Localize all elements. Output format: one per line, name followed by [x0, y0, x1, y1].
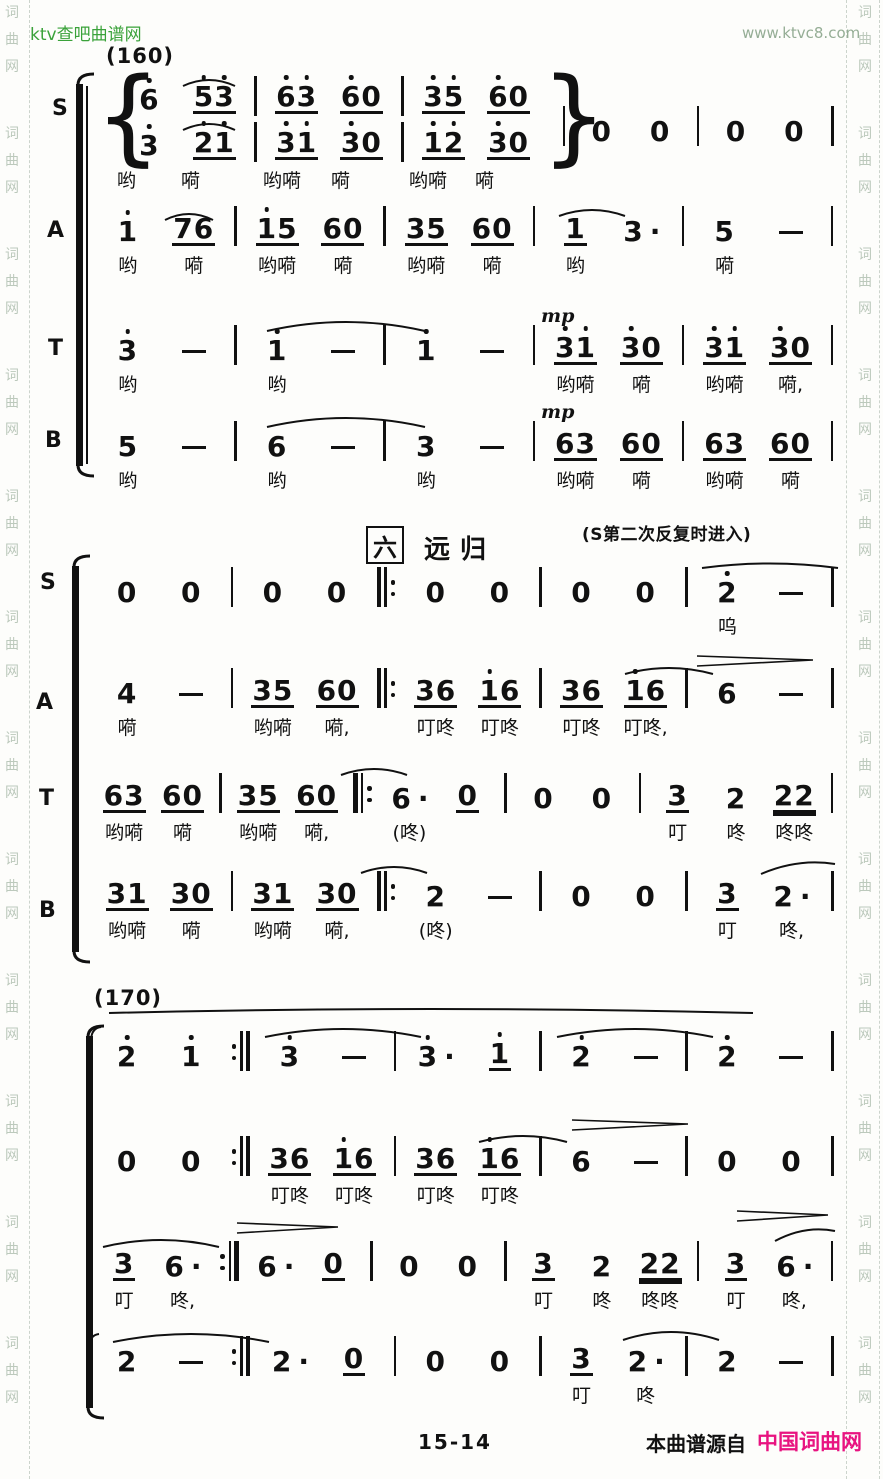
bar-cell: [223, 1330, 258, 1409]
note: 30: [487, 129, 530, 160]
bar-cell: [532, 1025, 550, 1104]
note: 35: [422, 83, 465, 114]
bar-cell: [678, 662, 696, 741]
note-digit: 3: [418, 1043, 438, 1071]
note-line: 3: [666, 767, 688, 813]
beat-cell: 1哟: [543, 200, 609, 279]
note: 2: [116, 1043, 138, 1071]
beat-cell: 2·咚: [614, 1330, 678, 1409]
repeat-end-barline: [223, 1330, 258, 1376]
duration-dash: [634, 1161, 658, 1165]
note-digit: 6: [621, 430, 641, 458]
beat-cell: 16叮咚: [322, 1130, 386, 1209]
bar-cell: [223, 1025, 258, 1104]
note-line: 60: [487, 70, 530, 114]
bar-cell: [247, 70, 265, 116]
note-digit: 6: [555, 430, 575, 458]
repeat-end-barline: [223, 1025, 258, 1071]
beat-cell: 0: [95, 561, 159, 640]
bar-cell: [247, 116, 265, 162]
voice-row-a: 1哟76嗬15哟嗬60嗬35哟嗬60嗬1哟3·5嗬: [95, 200, 841, 279]
barline: [824, 1330, 842, 1376]
voice-label-b2: B: [39, 898, 56, 923]
note-line: 0: [326, 561, 348, 607]
note-line: 0: [456, 767, 478, 813]
note: 1: [489, 1040, 511, 1071]
note: 0: [649, 118, 671, 146]
note: 3: [113, 1250, 135, 1281]
note-digit: 6: [436, 677, 456, 705]
note-line: 2·: [772, 865, 810, 911]
note-digit: 6: [391, 785, 411, 813]
barline: [631, 767, 649, 813]
bar-cell: [824, 1130, 842, 1209]
note-digit: 5: [714, 218, 734, 246]
note: 22: [639, 1250, 682, 1281]
augmentation-dot: ·: [650, 218, 661, 246]
note-digit: 2: [628, 1348, 648, 1376]
note: 63: [554, 430, 597, 461]
slur-curve: [107, 1005, 755, 1017]
note-digit: 6: [354, 1145, 374, 1173]
note-digit: 0: [781, 1148, 801, 1176]
voice-row-t: 3叮6·咚,6·0003叮2咚22咚咚3叮6·咚,: [95, 1235, 841, 1314]
note: 16: [624, 677, 667, 708]
note: 60: [769, 430, 812, 461]
lyric-text: 哟: [268, 466, 287, 494]
note-digit: 6: [571, 1148, 591, 1176]
note-line: 35: [237, 767, 280, 813]
beat-cell: 31哟嗬: [95, 865, 159, 944]
bar-cell: [532, 1330, 550, 1409]
watermark-char: 词: [5, 974, 19, 988]
note-digit: 3: [280, 1043, 300, 1071]
note-digit: 2: [117, 1348, 137, 1376]
lyric-text: 嗬: [483, 251, 502, 279]
watermark-char: 网: [858, 302, 872, 316]
note: 0: [322, 1250, 344, 1281]
note-line: [488, 865, 512, 911]
note: 36: [414, 677, 457, 708]
watermark-char: 曲: [858, 275, 872, 289]
watermark-char: 曲: [858, 1243, 872, 1257]
lyric-text: 哟嗬: [254, 713, 292, 741]
watermark-char: 词: [858, 490, 872, 504]
bar-cell: [212, 767, 230, 846]
beat-cell: 0: [707, 100, 765, 146]
note-digit: 0: [337, 880, 357, 908]
source-site: 中国词曲网: [757, 1426, 862, 1456]
note: 2: [570, 1043, 592, 1071]
watermark-char: 词: [858, 732, 872, 746]
note-line: 60: [471, 200, 514, 246]
watermark-char: 网: [858, 544, 872, 558]
note-digit: 4: [117, 680, 137, 708]
watermark-char: 网: [5, 665, 19, 679]
note-digit: 3: [114, 1250, 134, 1278]
note-line: 0: [180, 1130, 202, 1176]
bar-cell: [376, 415, 394, 494]
beat-cell: 0: [159, 1130, 223, 1209]
note: 1: [415, 337, 437, 365]
barline: [386, 1130, 404, 1176]
note: 0: [634, 579, 656, 607]
note-line: 0: [780, 1130, 802, 1176]
note-digit: 1: [127, 880, 147, 908]
note-line: 1: [564, 200, 586, 246]
barline: [223, 662, 241, 708]
note-digit: 3: [575, 430, 595, 458]
barline: [223, 865, 241, 911]
barline: [678, 662, 696, 708]
duration-dash: [179, 693, 203, 697]
voice-label-t2: T: [39, 786, 54, 811]
beat-cell: 6·咚,: [153, 1235, 211, 1314]
left-dashed-rule: [29, 0, 30, 1479]
beat-cell: 6: [695, 662, 759, 741]
beat-cell: 0: [614, 561, 678, 640]
note-line: 3: [138, 116, 160, 160]
beat-cell: 60嗬: [310, 200, 376, 279]
barline: [532, 561, 550, 607]
note: 5: [713, 218, 735, 246]
barline: [824, 561, 842, 607]
note-digit: 3: [623, 218, 643, 246]
watermark-char: 网: [858, 1028, 872, 1042]
voice-label-s2: S: [40, 570, 56, 595]
note: 2: [424, 883, 446, 911]
duration-dash: [779, 592, 803, 596]
note-line: 0: [424, 1330, 446, 1376]
note-digit: 6: [704, 430, 724, 458]
beat-cell: 2(咚): [404, 865, 468, 944]
watermark-char: 网: [5, 302, 19, 316]
beat-cell: [459, 415, 525, 494]
note: 53: [193, 83, 236, 114]
watermark-char: 词: [858, 1095, 872, 1109]
watermark-char: 网: [5, 1391, 19, 1405]
augmentation-dot: ·: [800, 883, 811, 911]
beat-cell: 3哟: [95, 319, 161, 398]
note-line: 4: [116, 662, 138, 708]
bar-cell: [678, 1025, 696, 1104]
note-line: [331, 415, 355, 461]
beat-cell: [459, 319, 525, 398]
note-digit: 2: [726, 785, 746, 813]
duration-dash: [182, 446, 206, 450]
note: 60: [321, 215, 364, 246]
beat-cell: 2咚: [707, 767, 765, 846]
note: 0: [262, 579, 284, 607]
watermark-char: 网: [5, 1149, 19, 1163]
note-digit: 0: [635, 579, 655, 607]
beat-cell: 0: [614, 865, 678, 944]
note-line: [634, 1130, 658, 1176]
lyric-text: 嗬: [182, 916, 201, 944]
note-digit: 3: [124, 782, 144, 810]
note-line: 2: [716, 561, 738, 607]
note-line: 3: [570, 1330, 592, 1376]
note-line: [182, 319, 206, 365]
note: 16: [478, 677, 521, 708]
note-digit: 1: [416, 337, 436, 365]
beat-cell: 36叮咚: [404, 662, 468, 741]
lyric-text: 咚咚: [641, 1286, 679, 1314]
barline: [532, 1130, 550, 1176]
lyric-text: 哟嗬: [108, 916, 146, 944]
note: 3: [716, 880, 738, 911]
repeat-annotation: (S第二次反复时进入): [582, 520, 751, 545]
note-digit: 1: [565, 215, 585, 243]
note: 60: [620, 430, 663, 461]
watermark-char: 曲: [858, 638, 872, 652]
bar-cell: [223, 662, 241, 741]
note-digit: 6: [276, 83, 296, 111]
lyric-text: 叮: [718, 916, 737, 944]
note-digit: 3: [297, 83, 317, 111]
note-line: 2: [716, 1025, 738, 1071]
beat-cell: 0: [549, 561, 613, 640]
note-line: 0: [489, 561, 511, 607]
note: 36: [560, 677, 603, 708]
bar-cell: [532, 865, 550, 944]
watermark-char: 词: [5, 127, 19, 141]
beat-cell: 2: [695, 1330, 759, 1409]
barline: [674, 319, 692, 365]
beat-cell: 2: [695, 1025, 759, 1104]
voice-row-t: 63哟嗬60嗬35哟嗬60嗬,6·(咚)0003叮2咚22咚咚: [95, 767, 841, 846]
beat-cell: 30: [476, 116, 541, 162]
bar-cell: [823, 415, 841, 494]
system-bracket: [86, 1036, 93, 1408]
note-digit: 0: [509, 83, 529, 111]
voice-row-s: 000000002呜: [95, 561, 841, 640]
augmentation-dot: ·: [444, 1043, 455, 1071]
note-digit: 1: [479, 1145, 499, 1173]
note-digit: 6: [488, 83, 508, 111]
note: 6·: [390, 785, 428, 813]
lyric-text: 哟: [566, 251, 585, 279]
note-line: 1: [489, 1025, 511, 1071]
note-line: 0: [725, 100, 747, 146]
bar-cell: [212, 1235, 247, 1314]
note-digit: 0: [533, 785, 553, 813]
beat-cell: 22咚咚: [765, 767, 823, 846]
note: 63: [103, 782, 146, 813]
note-digit: 3: [252, 677, 272, 705]
beat-cell: 76嗬: [161, 200, 227, 279]
bar-cell: [376, 200, 394, 279]
left-watermark-column: 词曲网词曲网词曲网词曲网词曲网词曲网词曲网词曲网词曲网词曲网词曲网词曲网: [2, 6, 22, 1458]
beat-cell: 15哟嗬: [244, 200, 310, 279]
note-line: 31: [251, 865, 294, 911]
note-digit: 6: [341, 83, 361, 111]
lyric-text: 哟: [118, 251, 137, 279]
note-line: 30: [170, 865, 213, 911]
note-line: 36: [414, 662, 457, 708]
note-digit: 0: [117, 1148, 137, 1176]
lyric-text: 哟: [118, 466, 137, 494]
watermark-char: 网: [5, 60, 19, 74]
note-line: 31: [703, 319, 746, 365]
note-line: 0: [262, 561, 284, 607]
note: 3·: [622, 218, 660, 246]
beat-cell: 60: [476, 70, 541, 116]
watermark-char: 词: [5, 611, 19, 625]
beat-cell: 0: [514, 767, 572, 846]
barline: [247, 70, 265, 116]
note: 31: [251, 880, 294, 911]
bar-cell: [394, 116, 412, 162]
note-digit: 1: [725, 334, 745, 362]
repeat-begin-barline: [369, 662, 404, 708]
note-digit: 6: [162, 782, 182, 810]
beat-cell: 4嗬: [95, 662, 159, 741]
bar-cell: [823, 1235, 841, 1314]
duration-dash: [779, 1361, 803, 1365]
voice-row-a: 4嗬35哟嗬60嗬,36叮咚16叮咚36叮咚16叮咚,6: [95, 662, 841, 741]
note-digit: 0: [361, 129, 381, 157]
note: 3: [666, 782, 688, 813]
note-line: 36: [560, 662, 603, 708]
note-digit: 1: [267, 337, 287, 365]
lyric-text: 嗬: [715, 251, 734, 279]
note-digit: 3: [725, 430, 745, 458]
lyric-text: 哟嗬: [105, 818, 143, 846]
beat-cell: 1哟: [244, 319, 310, 398]
beat-cell: 1哟: [95, 200, 161, 279]
section-number-box: 六: [366, 526, 404, 564]
right-edge-dashed-rule: [879, 0, 880, 1479]
bar-cell: [674, 415, 692, 494]
note-digit: 2: [717, 1043, 737, 1071]
note-digit: 3: [726, 1250, 746, 1278]
note-digit: 3: [488, 129, 508, 157]
note-digit: 0: [425, 1348, 445, 1376]
note-line: 6: [570, 1130, 592, 1176]
barline: [678, 865, 696, 911]
note: 16: [478, 1145, 521, 1176]
watermark-char: 词: [858, 853, 872, 867]
watermark-char: 曲: [5, 638, 19, 652]
lyric-text: 嗬,: [325, 713, 350, 741]
note-digit: 6: [500, 1145, 520, 1173]
note: 1: [180, 1043, 202, 1071]
beat-cell: [310, 319, 376, 398]
barline: [532, 1330, 550, 1376]
duration-dash: [779, 693, 803, 697]
note: 2: [716, 1043, 738, 1071]
beat-cell: 36叮咚: [258, 1130, 322, 1209]
note-line: 2: [570, 1025, 592, 1071]
lyric-text: 叮咚: [417, 1181, 455, 1209]
note-line: 1: [266, 319, 288, 365]
voice-row-t: 3哟1哟131哟嗬30嗬31哟嗬30嗬,mp: [95, 319, 841, 398]
beat-cell: [759, 662, 823, 741]
beat-cell: 63哟嗬: [543, 415, 609, 494]
lyric-text: 叮咚: [271, 1181, 309, 1209]
beat-cell: 0: [549, 865, 613, 944]
bar-cell: [223, 561, 241, 640]
bar-cell: [532, 561, 550, 640]
note-digit: 2: [444, 129, 464, 157]
note-digit: 1: [625, 677, 645, 705]
note-digit: 3: [533, 1250, 553, 1278]
bar-cell: [532, 1130, 550, 1209]
repeat-end-barline: [212, 1235, 247, 1281]
watermark-char: 网: [5, 1270, 19, 1284]
note-line: 2: [116, 1025, 138, 1071]
bar-cell: [386, 1330, 404, 1409]
note: 0: [489, 579, 511, 607]
note-digit: 0: [343, 215, 363, 243]
note-digit: 3: [276, 129, 296, 157]
beat-cell: 31: [264, 116, 329, 162]
note: 3: [532, 1250, 554, 1281]
watermark-char: 网: [5, 181, 19, 195]
note: 60: [295, 782, 338, 813]
note: 0: [424, 1348, 446, 1376]
note-digit: 0: [425, 579, 445, 607]
watermark-char: 曲: [5, 154, 19, 168]
beat-cell: 3·: [608, 200, 674, 279]
measure-cells: 3哟1哟131哟嗬30嗬31哟嗬30嗬,: [95, 319, 841, 398]
note-digit: 2: [194, 129, 214, 157]
bar-cell: [386, 1130, 404, 1209]
note-line: 5: [117, 415, 139, 461]
beat-cell: 2呜: [695, 561, 759, 640]
note-digit: 6: [257, 1253, 277, 1281]
unison-rests: 0000: [555, 100, 841, 146]
note: 6·: [256, 1253, 294, 1281]
note-line: 35: [251, 662, 294, 708]
note-line: 35: [405, 200, 448, 246]
note-line: 3: [725, 1235, 747, 1281]
section-title: 远归: [424, 529, 496, 566]
note: 60: [471, 215, 514, 246]
watermark-char: 曲: [858, 1001, 872, 1015]
note-digit: 6: [139, 86, 159, 114]
beat-cell: 35哟嗬: [229, 767, 287, 846]
note-line: 0: [649, 100, 671, 146]
note-digit: 3: [214, 83, 234, 111]
watermark-char: 词: [858, 1337, 872, 1351]
note-digit: 6: [296, 782, 316, 810]
note-line: 31: [275, 116, 318, 160]
note-digit: 0: [571, 883, 591, 911]
note: 60: [316, 677, 359, 708]
note-digit: 1: [297, 129, 317, 157]
barline: [497, 767, 515, 813]
note: 0: [716, 1148, 738, 1176]
note-line: 0: [343, 1330, 365, 1376]
watermark-char: 网: [5, 907, 19, 921]
note-digit: 2: [794, 782, 814, 810]
lyric-text: 哟: [417, 466, 436, 494]
watermark-char: 词: [858, 369, 872, 383]
note-line: 3: [117, 319, 139, 365]
note-line: [179, 662, 203, 708]
watermark-char: 曲: [858, 759, 872, 773]
watermark-char: 曲: [5, 1364, 19, 1378]
beat-cell: [758, 200, 824, 279]
lyric-text: 叮: [726, 1286, 745, 1314]
bar-cell: [631, 767, 649, 846]
beat-cell: 30: [329, 116, 394, 162]
note-digit: 0: [717, 1148, 737, 1176]
barline: [525, 200, 543, 246]
note-digit: 2: [272, 1348, 292, 1376]
